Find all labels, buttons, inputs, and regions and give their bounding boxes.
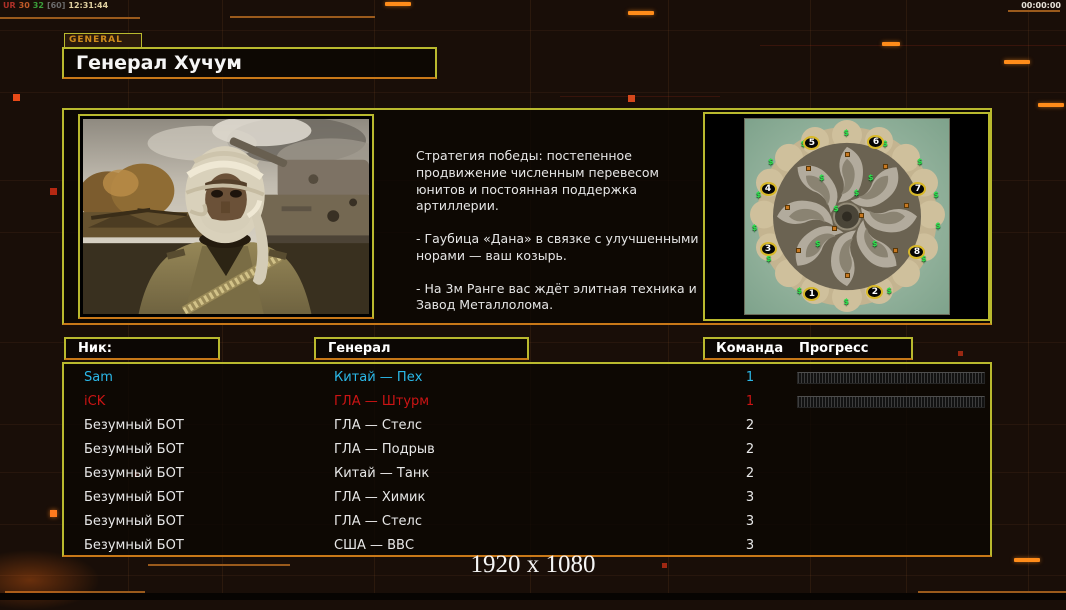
overlay-token: [60]	[47, 1, 65, 10]
roster-row[interactable]: Безумный БОТ Китай — Танк 2	[64, 462, 990, 486]
player-team: 1	[739, 370, 761, 385]
player-nick: Безумный БОТ	[84, 514, 184, 529]
building-marker-icon	[904, 203, 909, 208]
building-marker-icon	[859, 213, 864, 218]
player-general: ГЛА — Подрыв	[334, 442, 435, 457]
nick-header-label: Ник:	[78, 341, 112, 356]
map-preview-panel: $$$$$$$$$$$$$$$$$$$$56473812	[703, 112, 990, 321]
general-header-label: Генерал	[328, 341, 391, 356]
match-timer: 00:00:00	[1021, 1, 1061, 10]
portrait-image	[83, 119, 369, 314]
supply-dollar-icon: $	[768, 158, 774, 166]
team-header-label: Команда	[716, 339, 783, 359]
player-nick: iCK	[84, 394, 105, 409]
map-terrain	[745, 119, 949, 314]
start-position-badge: 3	[760, 242, 777, 256]
column-header-general: Генерал	[314, 337, 529, 360]
supply-dollar-icon: $	[854, 189, 860, 197]
roster-row[interactable]: Безумный БОТ ГЛА — Стелс 2	[64, 414, 990, 438]
supply-dollar-icon: $	[833, 205, 839, 213]
supply-dollar-icon: $	[935, 222, 941, 230]
player-team: 2	[739, 418, 761, 433]
roster-row[interactable]: iCK ГЛА — Штурм 1	[64, 390, 990, 414]
general-portrait	[78, 114, 374, 319]
start-position-badge: 4	[760, 182, 777, 196]
briefing-paragraph: - Гаубица «Дана» в связке с улучшенными …	[416, 231, 702, 265]
roster-row[interactable]: Безумный БОТ ГЛА — Химик 3	[64, 486, 990, 510]
building-marker-icon	[893, 248, 898, 253]
building-marker-icon	[806, 166, 811, 171]
player-team: 3	[739, 514, 761, 529]
player-general: ГЛА — Стелс	[334, 514, 422, 529]
supply-dollar-icon: $	[917, 158, 923, 166]
roster-row[interactable]: Безумный БОТ ГЛА — Стелс 3	[64, 510, 990, 534]
supply-dollar-icon: $	[933, 191, 939, 199]
supply-dollar-icon: $	[797, 287, 803, 295]
building-marker-icon	[832, 226, 837, 231]
briefing-panel: Стратегия победы: постепенное продвижени…	[62, 108, 992, 325]
player-team: 2	[739, 442, 761, 457]
player-nick: Безумный БОТ	[84, 466, 184, 481]
progress-header-label: Прогресс	[799, 339, 868, 359]
player-team: 2	[739, 466, 761, 481]
player-progress-bar	[797, 396, 985, 408]
building-marker-icon	[796, 248, 801, 253]
overlay-token: 32	[33, 1, 44, 10]
building-marker-icon	[845, 273, 850, 278]
map-preview: $$$$$$$$$$$$$$$$$$$$56473812	[744, 118, 950, 315]
roster-row[interactable]: Безумный БОТ ГЛА — Подрыв 2	[64, 438, 990, 462]
player-roster: Sam Китай — Пех 1 iCK ГЛА — Штурм 1 Безу…	[62, 362, 992, 557]
fps-overlay: UR3032[60]12:31:44	[3, 1, 111, 10]
roster-body: Sam Китай — Пех 1 iCK ГЛА — Штурм 1 Безу…	[64, 366, 990, 555]
player-nick: Sam	[84, 370, 113, 385]
player-nick: Безумный БОТ	[84, 442, 184, 457]
overlay-token: UR	[3, 1, 16, 10]
resolution-watermark: 1920 x 1080	[0, 551, 1066, 579]
building-marker-icon	[845, 152, 850, 157]
supply-dollar-icon: $	[844, 129, 850, 137]
building-marker-icon	[785, 205, 790, 210]
player-general: Китай — Пех	[334, 370, 422, 385]
player-general: ГЛА — Стелс	[334, 418, 422, 433]
overlay-token: 12:31:44	[68, 1, 108, 10]
player-general: ГЛА — Химик	[334, 490, 425, 505]
player-general: ГЛА — Штурм	[334, 394, 429, 409]
briefing-paragraph: Стратегия победы: постепенное продвижени…	[416, 148, 702, 215]
player-progress-bar	[797, 372, 985, 384]
general-title-box: Генерал Хучум	[62, 47, 437, 79]
supply-dollar-icon: $	[868, 174, 874, 182]
briefing-paragraph: - На 3м Ранге вас ждёт элитная техника и…	[416, 281, 702, 315]
player-nick: Безумный БОТ	[84, 418, 184, 433]
player-team: 3	[739, 490, 761, 505]
supply-dollar-icon: $	[752, 224, 758, 232]
column-header-nick: Ник:	[64, 337, 220, 360]
supply-dollar-icon: $	[766, 255, 772, 263]
player-general: Китай — Танк	[334, 466, 429, 481]
column-header-team-progress: Команда Прогресс	[703, 337, 913, 360]
general-tab-label: GENERAL	[64, 33, 142, 48]
strategy-briefing: Стратегия победы: постепенное продвижени…	[416, 148, 702, 330]
supply-dollar-icon: $	[819, 174, 825, 182]
roster-row[interactable]: Sam Китай — Пех 1	[64, 366, 990, 390]
building-marker-icon	[883, 164, 888, 169]
page-title: Генерал Хучум	[64, 49, 435, 77]
player-team: 1	[739, 394, 761, 409]
player-nick: Безумный БОТ	[84, 490, 184, 505]
supply-dollar-icon: $	[815, 240, 821, 248]
supply-dollar-icon: $	[872, 240, 878, 248]
overlay-token: 30	[19, 1, 30, 10]
supply-dollar-icon: $	[844, 298, 850, 306]
supply-dollar-icon: $	[886, 287, 892, 295]
